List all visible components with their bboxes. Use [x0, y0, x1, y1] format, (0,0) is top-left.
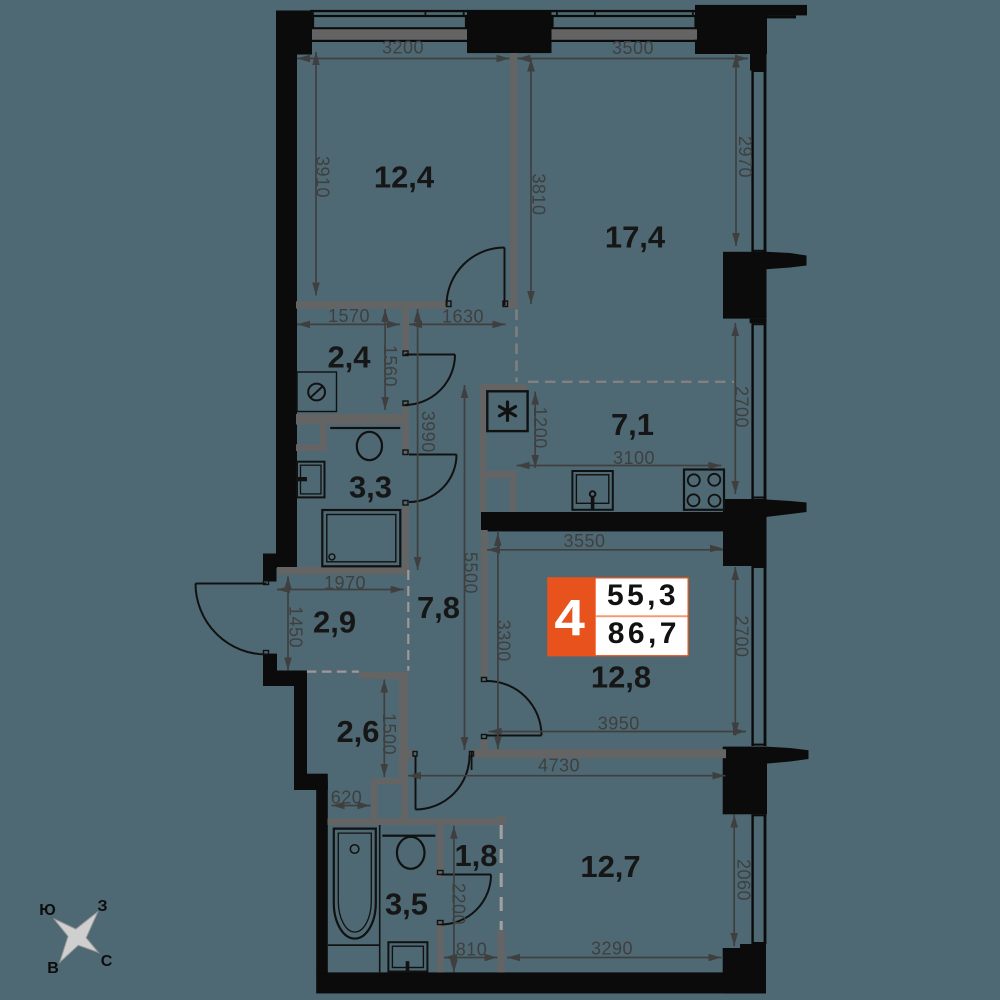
svg-text:3100: 3100: [613, 448, 655, 468]
svg-text:3810: 3810: [529, 173, 549, 215]
svg-text:1200: 1200: [530, 407, 550, 449]
svg-text:3200: 3200: [382, 38, 424, 58]
svg-text:2700: 2700: [732, 615, 752, 657]
svg-text:2,4: 2,4: [327, 340, 371, 375]
svg-text:2,6: 2,6: [336, 714, 379, 749]
svg-text:5500: 5500: [461, 552, 481, 594]
svg-text:3950: 3950: [598, 714, 640, 734]
svg-text:7,8: 7,8: [417, 590, 460, 625]
svg-text:4: 4: [554, 589, 585, 646]
svg-text:1570: 1570: [328, 306, 370, 326]
svg-text:3,5: 3,5: [385, 887, 428, 922]
svg-text:2700: 2700: [732, 386, 752, 428]
svg-text:3550: 3550: [563, 531, 605, 551]
svg-text:3990: 3990: [418, 411, 438, 453]
svg-text:2200: 2200: [449, 883, 469, 925]
svg-text:810: 810: [456, 940, 488, 960]
svg-text:3,3: 3,3: [349, 470, 392, 505]
svg-text:620: 620: [331, 788, 363, 808]
svg-text:12,8: 12,8: [591, 660, 651, 695]
svg-text:3910: 3910: [313, 156, 333, 198]
svg-text:7,1: 7,1: [611, 407, 654, 442]
svg-text:1450: 1450: [286, 606, 306, 648]
svg-text:3500: 3500: [612, 38, 654, 58]
svg-text:1,8: 1,8: [454, 838, 497, 873]
svg-text:Ю: Ю: [39, 902, 56, 919]
svg-text:2060: 2060: [734, 859, 754, 901]
svg-text:3300: 3300: [494, 620, 514, 662]
svg-text:В: В: [47, 960, 59, 977]
svg-text:4730: 4730: [538, 756, 580, 776]
svg-text:86,7: 86,7: [608, 617, 680, 650]
svg-text:55,3: 55,3: [607, 579, 679, 612]
svg-text:17,4: 17,4: [605, 220, 666, 255]
svg-text:1630: 1630: [442, 307, 484, 327]
svg-text:С: С: [101, 953, 113, 970]
svg-text:1560: 1560: [380, 345, 400, 387]
svg-text:3290: 3290: [591, 939, 633, 959]
svg-text:2970: 2970: [735, 136, 755, 178]
svg-text:1500: 1500: [379, 713, 399, 755]
svg-text:З: З: [97, 898, 107, 915]
svg-text:12,7: 12,7: [580, 849, 640, 884]
svg-text:2,9: 2,9: [313, 605, 356, 640]
svg-text:1970: 1970: [324, 573, 366, 593]
svg-text:12,4: 12,4: [374, 160, 435, 195]
